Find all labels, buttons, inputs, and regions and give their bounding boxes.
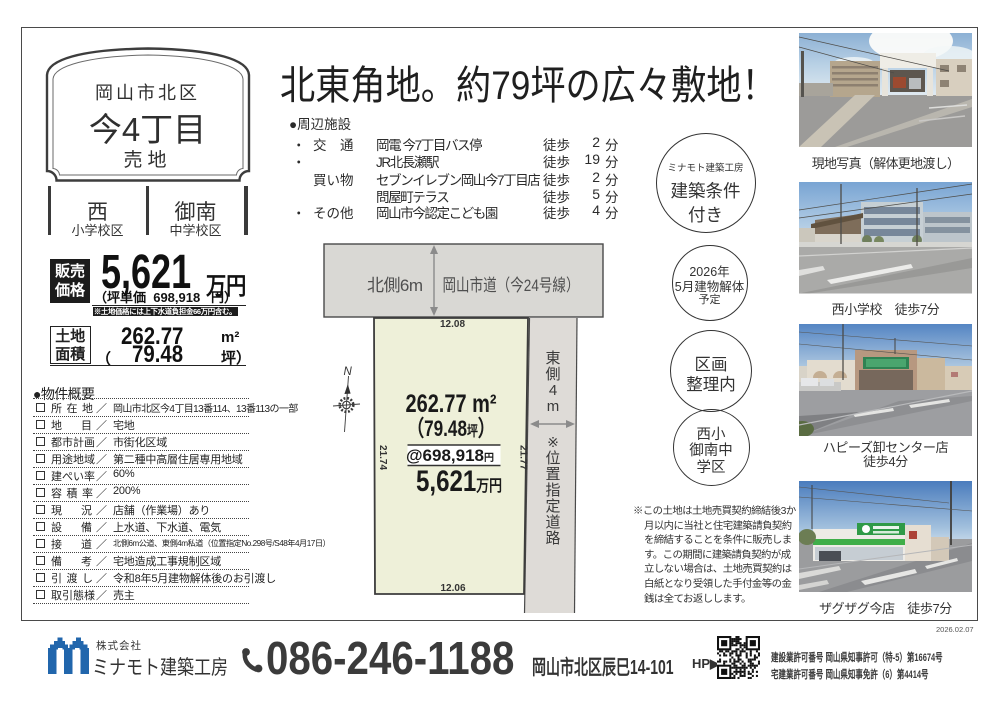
svg-text:4: 4 xyxy=(549,382,557,399)
svg-text:北側6m: 北側6m xyxy=(367,276,423,295)
svg-text:12.08: 12.08 xyxy=(440,319,465,330)
svg-text:21.77: 21.77 xyxy=(518,445,529,470)
svg-text:路: 路 xyxy=(545,530,560,547)
svg-text:12.06: 12.06 xyxy=(440,583,465,594)
svg-text:m: m xyxy=(547,398,560,415)
svg-text:N: N xyxy=(344,366,353,378)
svg-text:定: 定 xyxy=(545,498,560,515)
svg-text:東: 東 xyxy=(545,350,560,367)
svg-text:岡山市道（今24号線）: 岡山市道（今24号線） xyxy=(443,276,580,295)
svg-text:位: 位 xyxy=(545,450,560,467)
svg-text:262.77 m²: 262.77 m² xyxy=(406,390,497,418)
svg-text:側: 側 xyxy=(545,366,560,383)
svg-text:（79.48坪）: （79.48坪） xyxy=(407,416,495,441)
svg-text:※: ※ xyxy=(547,434,559,450)
svg-text:道: 道 xyxy=(545,514,560,531)
svg-text:21.74: 21.74 xyxy=(377,445,388,470)
svg-text:@698,918円: @698,918円 xyxy=(406,446,494,465)
svg-text:指: 指 xyxy=(545,482,560,499)
svg-text:置: 置 xyxy=(545,466,560,483)
